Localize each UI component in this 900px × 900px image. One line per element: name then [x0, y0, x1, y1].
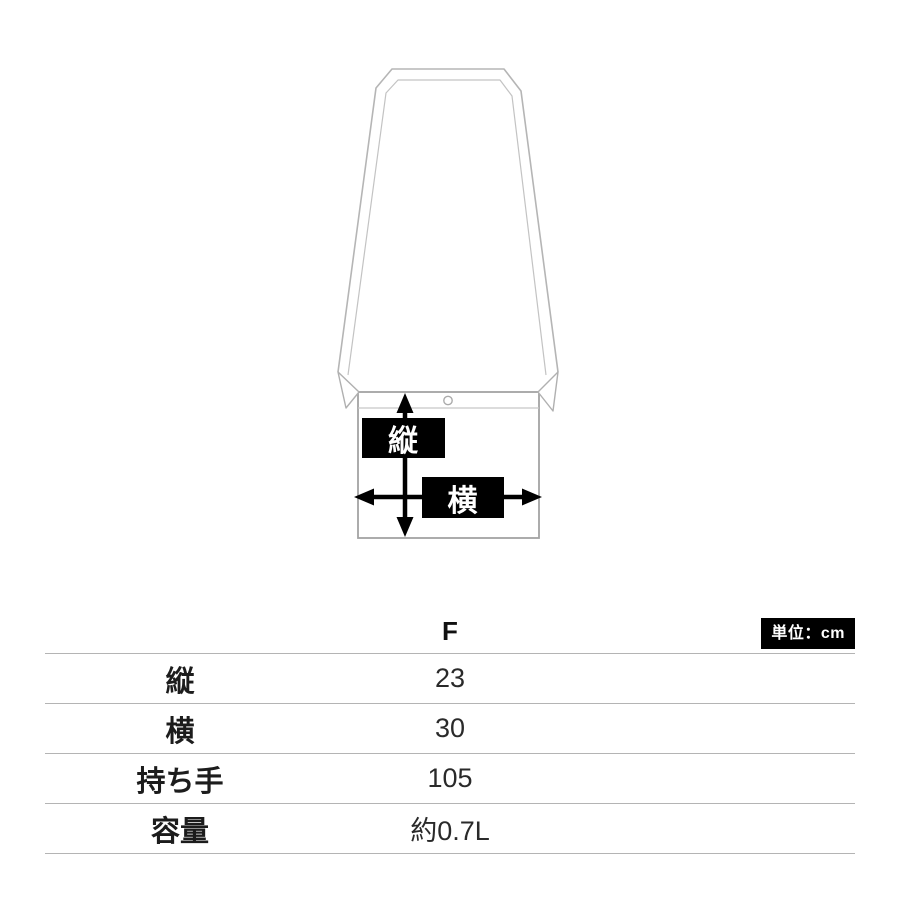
table-row: 横 30	[45, 703, 855, 753]
table-body: 縦 23 横 30 持ち手 105 容量 約0.7L	[45, 653, 855, 854]
shoulder-strap	[338, 69, 558, 375]
table-row: 容量 約0.7L	[45, 803, 855, 853]
row-value: 約0.7L	[315, 809, 585, 848]
row-value: 30	[315, 713, 585, 744]
table-header-row: F 単位：cm	[45, 610, 855, 653]
strap-fold-right-icon	[538, 372, 558, 411]
row-label: 横	[45, 708, 315, 750]
table-row: 持ち手 105	[45, 753, 855, 803]
size-column-header: F	[315, 610, 585, 653]
row-label: 持ち手	[45, 758, 315, 800]
snap-button-icon	[444, 396, 452, 404]
row-value: 23	[315, 663, 585, 694]
bag-dimension-diagram: 縦 横	[0, 0, 900, 575]
row-label: 縦	[45, 658, 315, 700]
product-spec-panel: 縦 横 F 単位：cm 縦 23 横 30 持ち手 105 容量 約0.7L	[0, 0, 900, 900]
table-row: 縦 23	[45, 653, 855, 703]
size-spec-table: F 単位：cm 縦 23 横 30 持ち手 105 容量 約0.7L	[45, 610, 855, 854]
vertical-dimension-label: 縦	[362, 418, 445, 458]
unit-badge: 単位：cm	[761, 618, 855, 649]
horizontal-dimension-label: 横	[422, 477, 504, 518]
strap-fold-left-icon	[338, 372, 359, 408]
row-value: 105	[315, 763, 585, 794]
row-label: 容量	[45, 808, 315, 850]
